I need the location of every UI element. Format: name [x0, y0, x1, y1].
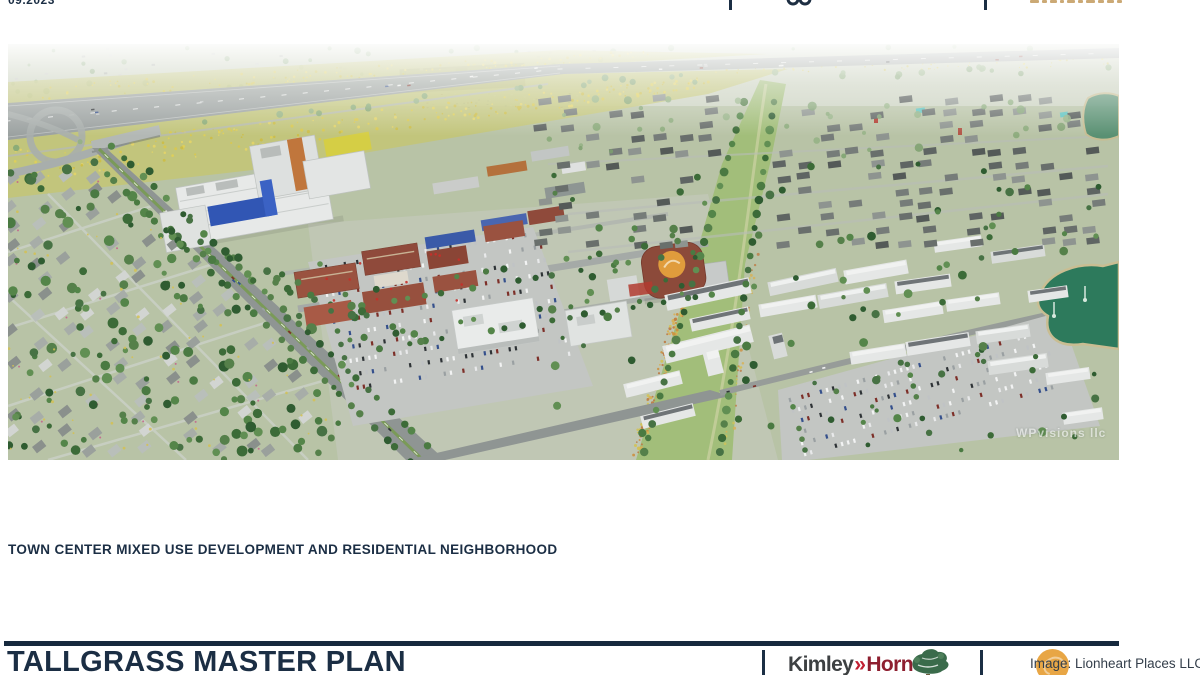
header-divider-bar-left [729, 0, 732, 10]
masterplan-rendering-svg [8, 44, 1119, 460]
clipped-logo-glyph-icon [785, 0, 815, 9]
masterplan-rendering: WPvisions llc [8, 44, 1119, 460]
image-credit: Image: Lionheart Places LLC [1030, 656, 1200, 671]
rendering-watermark: WPvisions llc [1016, 426, 1106, 440]
footer-divider-bar-left [762, 650, 765, 675]
header-tan-text-sliver [1030, 0, 1122, 5]
image-caption: TOWN CENTER MIXED USE DEVELOPMENT AND RE… [8, 542, 558, 557]
page-title: TALLGRASS MASTER PLAN [7, 646, 406, 675]
kimley-horn-logo: Kimley»Horn [788, 653, 913, 675]
kimley-word: Kimley [788, 653, 853, 675]
oak-tree-logo-icon [908, 647, 950, 675]
header-divider-bar-right [984, 0, 987, 10]
horn-word: Horn [866, 653, 913, 675]
page-date: 09.2023 [8, 0, 55, 7]
footer-divider-bar-right [980, 650, 983, 675]
kimley-chevron-icon: » [853, 653, 866, 675]
document-page: 09.2023 [0, 0, 1200, 675]
